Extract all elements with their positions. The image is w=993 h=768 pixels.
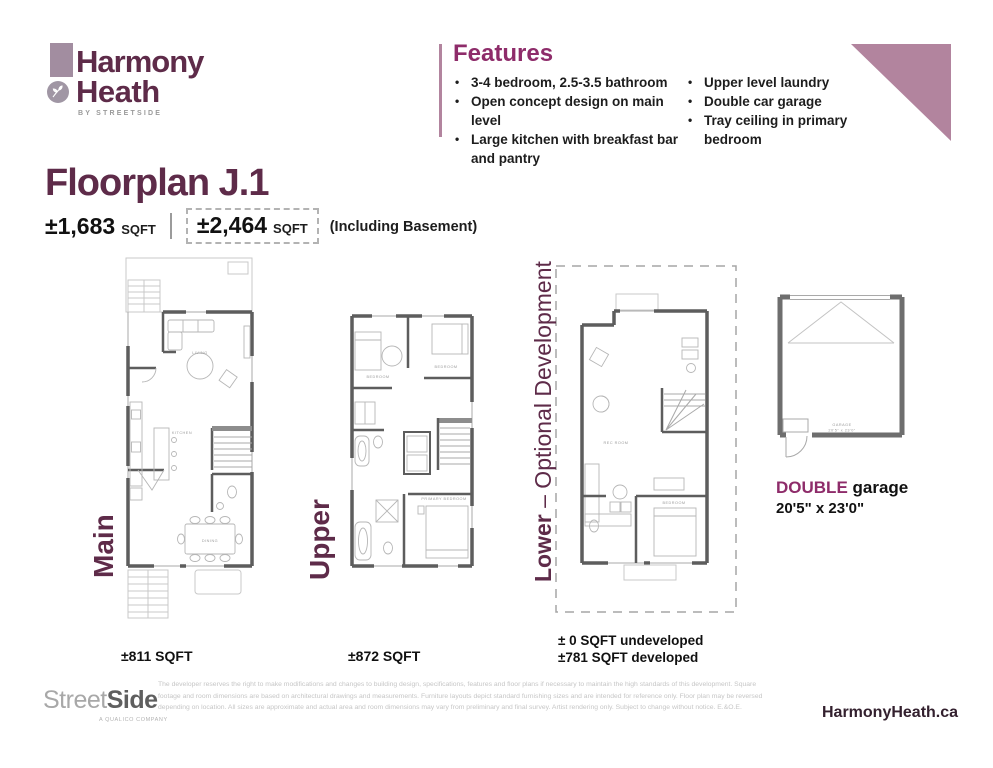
bullet-icon: • <box>688 73 704 92</box>
lower-floorplan-drawing: REC ROOM BEDROOM <box>554 264 738 619</box>
features-divider-bar <box>439 44 442 137</box>
bullet-icon: • <box>688 111 704 149</box>
bullet-icon: • <box>455 130 471 168</box>
feature-text: Open concept design on main level <box>471 92 695 130</box>
bullet-icon: • <box>455 92 471 130</box>
feature-text: Tray ceiling in primary bedroom <box>704 111 848 149</box>
brand-name-line2: Heath <box>76 74 160 110</box>
feature-item: •Double car garage <box>688 92 848 111</box>
feature-item: •Large kitchen with breakfast bar and pa… <box>455 130 695 168</box>
sqft-total-unit: SQFT <box>273 221 308 236</box>
main-plan-caption: ±811 SQFT <box>121 648 193 664</box>
feature-text: Upper level laundry <box>704 73 829 92</box>
sqft-total-box: ±2,464 SQFT <box>186 208 319 244</box>
disclaimer-text: The developer reserves the right to make… <box>158 679 808 714</box>
garage-floorplan-drawing: GARAGE 20'5" x 23'0" <box>776 291 906 468</box>
corner-triangle-decoration <box>851 44 951 146</box>
feature-item: •Tray ceiling in primary bedroom <box>688 111 848 149</box>
room-label-dining: DINING <box>202 539 218 543</box>
garage-caption-bold: DOUBLE <box>776 478 848 497</box>
room-label-bed1: BEDROOM <box>366 375 389 379</box>
garage-caption-rest: garage <box>848 478 908 497</box>
room-label-living: LIVING <box>192 351 207 355</box>
disclaimer-line3: depending on location. All sizes are app… <box>158 702 808 714</box>
lower-caption-line1: ± 0 SQFT undeveloped <box>558 632 703 649</box>
lower-caption-line2: ±781 SQFT developed <box>558 649 703 666</box>
features-column-1: •3-4 bedroom, 2.5-3.5 bathroom •Open con… <box>455 73 695 168</box>
feature-text: Large kitchen with breakfast bar and pan… <box>471 130 695 168</box>
room-label-rec: REC ROOM <box>604 441 629 445</box>
garage-dimensions: 20'5" x 23'0" <box>776 500 864 517</box>
feature-item: •Open concept design on main level <box>455 92 695 130</box>
sqft-main-value: ±1,683 <box>45 213 115 240</box>
room-label-bed2: BEDROOM <box>434 365 457 369</box>
features-title: Features <box>453 40 553 68</box>
room-label-primary: PRIMARY BEDROOM <box>421 497 466 501</box>
leaf-icon <box>46 80 70 104</box>
feature-item: •Upper level laundry <box>688 73 848 92</box>
feature-item: •3-4 bedroom, 2.5-3.5 bathroom <box>455 73 695 92</box>
lower-label-rest: – Optional Development <box>530 261 556 514</box>
page-title: Floorplan J.1 <box>45 162 268 205</box>
disclaimer-line2: footage and room dimensions are based on… <box>158 691 808 703</box>
sqft-total-value: ±2,464 <box>197 212 267 239</box>
lower-plan-caption: ± 0 SQFT undeveloped ±781 SQFT developed <box>558 632 703 666</box>
streetside-logo-light: Street <box>43 686 107 714</box>
flyer-page: Harmony Heath BY STREETSIDE Features •3-… <box>0 0 993 768</box>
upper-floorplan-drawing: BEDROOM BEDROOM PRIMARY BEDROOM <box>346 310 478 577</box>
streetside-logo-bold: Side <box>107 686 158 714</box>
upper-plan-label: Upper <box>304 499 336 580</box>
streetside-logo-subtext: A QUALICO COMPANY <box>99 717 168 723</box>
bullet-icon: • <box>455 73 471 92</box>
disclaimer-line1: The developer reserves the right to make… <box>158 679 808 691</box>
sqft-note: (Including Basement) <box>330 219 477 235</box>
garage-caption: DOUBLE garage <box>776 478 908 498</box>
lower-label-bold: Lower <box>530 514 556 582</box>
upper-plan-caption: ±872 SQFT <box>348 648 420 664</box>
streetside-logo: StreetSide <box>43 686 158 715</box>
main-floorplan-drawing: LIVING KITCHEN DINING <box>124 256 256 629</box>
sqft-main-unit: SQFT <box>121 222 156 237</box>
lower-plan-label: Lower – Optional Development <box>530 261 557 582</box>
garage-inner-label: GARAGE <box>832 423 851 427</box>
feature-text: Double car garage <box>704 92 822 111</box>
brand-tagline: BY STREETSIDE <box>78 110 162 117</box>
room-label-lowerbed: BEDROOM <box>662 501 685 505</box>
garage-inner-dimensions: 20'5" x 23'0" <box>828 429 855 433</box>
brand-square-mark <box>50 43 73 77</box>
website-link[interactable]: HarmonyHeath.ca <box>822 704 958 722</box>
sqft-summary: ±1,683 SQFT ±2,464 SQFT (Including Basem… <box>45 208 477 244</box>
main-plan-label: Main <box>88 514 120 578</box>
sqft-divider <box>170 213 172 239</box>
feature-text: 3-4 bedroom, 2.5-3.5 bathroom <box>471 73 668 92</box>
features-column-2: •Upper level laundry •Double car garage … <box>688 73 848 149</box>
bullet-icon: • <box>688 92 704 111</box>
room-label-kitchen: KITCHEN <box>172 431 192 435</box>
